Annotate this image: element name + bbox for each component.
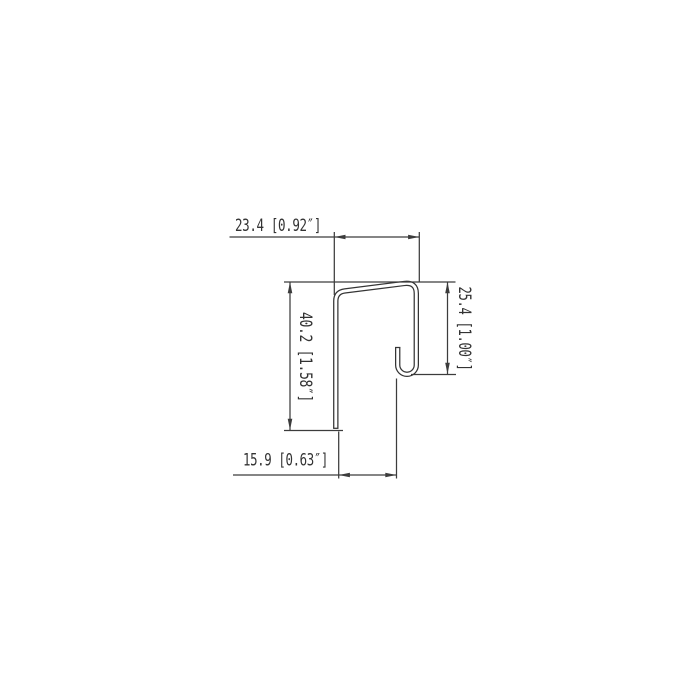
dimension-label-left: 40.2 [1.58″] <box>295 312 315 402</box>
dimension-label-right: 25.4 [1.00″] <box>454 287 474 371</box>
arrowhead-bottom-left <box>339 473 350 478</box>
profile-material <box>336 283 417 428</box>
dimension-label-top: 23.4 [0.92″] <box>235 216 321 236</box>
arrowhead-top-right <box>408 235 419 240</box>
profile-material-core <box>336 283 417 428</box>
arrowhead-bottom-right <box>385 473 396 478</box>
arrowhead-left-top <box>288 282 293 293</box>
arrowhead-right-bottom <box>445 363 450 374</box>
arrowhead-right-top <box>445 282 450 293</box>
arrowhead-left-bottom <box>288 419 293 430</box>
dimension-right-height: 25.4 [1.00″] <box>411 282 474 375</box>
technical-drawing: 23.4 [0.92″] 40.2 [1.58″] 25.4 [1.00″] 1… <box>0 0 700 700</box>
arrowhead-top-left <box>334 235 345 240</box>
diagram-page: 23.4 [0.92″] 40.2 [1.58″] 25.4 [1.00″] 1… <box>0 0 700 700</box>
dimension-label-bottom: 15.9 [0.63″] <box>243 451 328 471</box>
profile-outline <box>333 283 416 428</box>
